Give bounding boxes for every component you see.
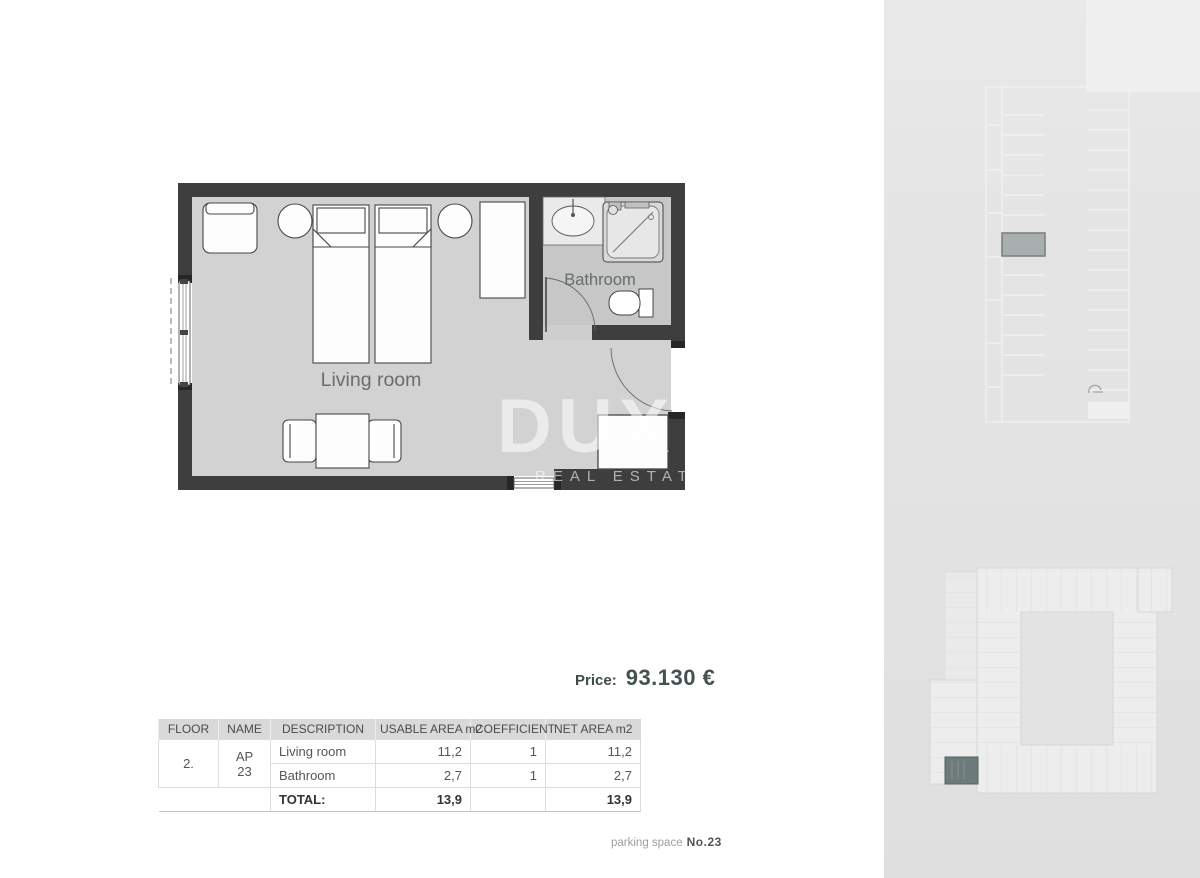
parking-note-label: parking space [611,837,683,849]
car-entry-icon [1089,385,1103,393]
col-name: NAME [219,719,271,740]
floor-cell: 2. [159,740,219,788]
apartment-location-highlight [945,757,978,784]
price-line: Price: 93.130 € [575,665,715,691]
shower [603,202,663,262]
balcony-window [171,278,190,388]
dining-set [283,414,401,468]
wardrobe [480,202,525,298]
price-label: Price: [575,672,617,689]
bedside-table [278,204,312,238]
price-value: 93.130 € [626,665,716,691]
bed [375,205,431,363]
sink [543,197,605,245]
col-coefficient: COEFFICIENT [471,719,546,740]
col-usable-area: USABLE AREA m2 [376,719,471,740]
col-description: DESCRIPTION [271,719,376,740]
bottom-window [514,478,554,488]
total-usable-cell: 13,9 [376,788,471,812]
building-plan [926,562,1174,817]
total-label-cell: TOTAL: [271,788,376,812]
bathroom-door-threshold [543,325,592,340]
parking-note-number: No.23 [687,835,722,849]
table-row: 2. AP 23 Living room 11,2 1 11,2 [159,740,641,764]
area-table: FLOOR NAME DESCRIPTION USABLE AREA m2 CO… [158,719,641,812]
bathroom-label: Bathroom [564,271,636,289]
table-header-row: FLOOR NAME DESCRIPTION USABLE AREA m2 CO… [159,719,641,740]
col-net-area: NET AREA m2 [546,719,641,740]
toilet [609,289,653,317]
usable-cell: 11,2 [376,740,471,764]
description-cell: Bathroom [271,764,376,788]
parking-map [985,86,1130,424]
apartment-name-cell: AP 23 [219,740,271,788]
bedside-table [438,204,472,238]
coefficient-cell: 1 [471,740,546,764]
page-root: { "floor_plan": { "living_room_label": "… [0,0,1200,878]
coefficient-cell: 1 [471,764,546,788]
sidebar [884,0,1200,878]
parking-note: parking spaceNo.23 [611,835,722,849]
bed [313,205,369,363]
net-cell: 11,2 [546,740,641,764]
description-cell: Living room [271,740,376,764]
living-room-label: Living room [321,369,422,391]
total-net-cell: 13,9 [546,788,641,812]
scan-artifact [1086,0,1200,92]
entry-counter [598,415,668,469]
usable-cell: 2,7 [376,764,471,788]
table-total-row: TOTAL: 13,9 13,9 [159,788,641,812]
net-cell: 2,7 [546,764,641,788]
parking-space-highlight [1002,233,1045,256]
parking-ramp [1088,402,1129,419]
apartment-floorplan: Living room Bathroom [165,175,695,505]
total-spacer [159,788,271,812]
total-empty-cell [471,788,546,812]
col-floor: FLOOR [159,719,219,740]
